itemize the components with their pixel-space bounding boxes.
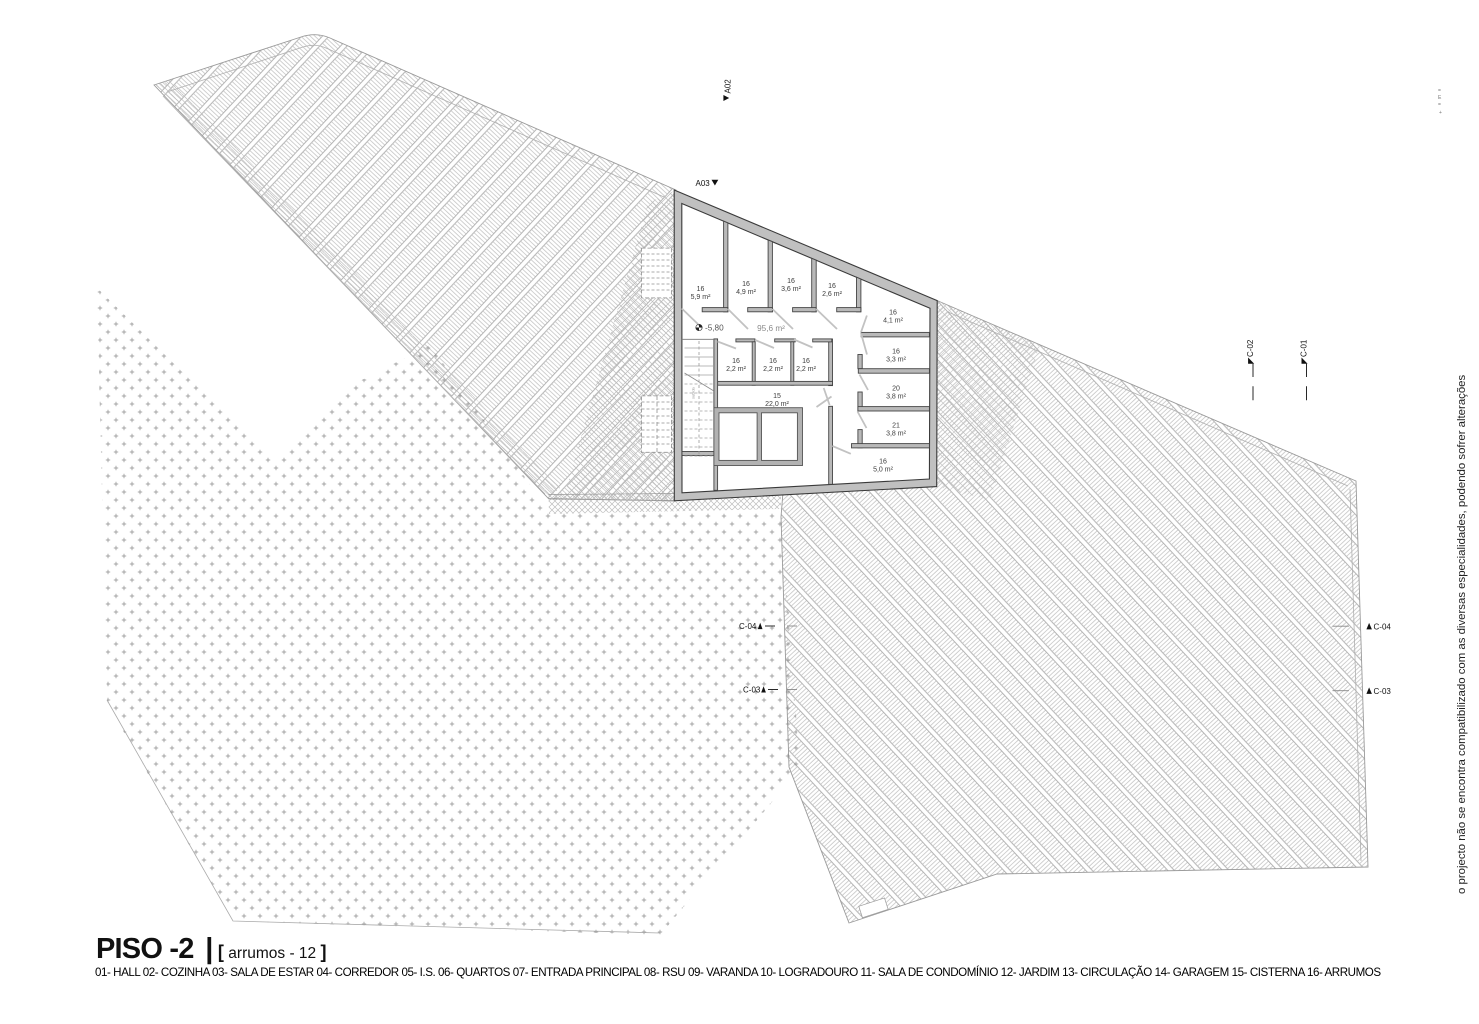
svg-text:15: 15	[773, 393, 781, 400]
svg-text:16: 16	[697, 286, 705, 293]
svg-text:+: +	[1439, 110, 1442, 116]
svg-text:16: 16	[879, 459, 887, 466]
svg-text:=: =	[1438, 102, 1441, 108]
svg-text:5,0 m²: 5,0 m²	[873, 467, 894, 474]
svg-text:A03: A03	[696, 179, 711, 188]
svg-text:16: 16	[892, 349, 900, 356]
svg-text:21: 21	[892, 423, 900, 430]
svg-text:C-03: C-03	[743, 686, 761, 695]
svg-text:subida: subida	[691, 386, 696, 399]
svg-text:3,8 m²: 3,8 m²	[886, 431, 907, 438]
svg-text:5,9 m²: 5,9 m²	[691, 294, 712, 301]
svg-text:C-03: C-03	[1374, 687, 1392, 696]
svg-text:20: 20	[892, 386, 900, 393]
svg-text:A02: A02	[724, 79, 733, 94]
svg-text:95,6 m²: 95,6 m²	[757, 324, 785, 333]
svg-text:16: 16	[742, 281, 750, 288]
svg-text:16: 16	[732, 358, 740, 365]
svg-text:2,2 m²: 2,2 m²	[796, 366, 817, 373]
svg-text:-5,80: -5,80	[705, 324, 724, 333]
svg-text:C-02: C-02	[1246, 339, 1255, 357]
svg-text:16: 16	[769, 358, 777, 365]
svg-text:E: E	[1438, 95, 1442, 101]
svg-text:2,6 m²: 2,6 m²	[822, 291, 843, 298]
svg-text:3,3 m²: 3,3 m²	[886, 357, 907, 364]
svg-text:=: =	[1438, 88, 1441, 94]
svg-text:16: 16	[828, 283, 836, 290]
svg-text:C-04: C-04	[1374, 622, 1392, 631]
svg-text:4,9 m²: 4,9 m²	[736, 289, 757, 296]
svg-text:C-04: C-04	[739, 622, 757, 631]
svg-text:4,1 m²: 4,1 m²	[883, 318, 904, 325]
svg-text:C-01: C-01	[1300, 339, 1309, 357]
svg-text:16: 16	[802, 358, 810, 365]
svg-text:3,6 m²: 3,6 m²	[781, 286, 802, 293]
svg-text:2,2 m²: 2,2 m²	[726, 366, 747, 373]
svg-text:22,0 m²: 22,0 m²	[765, 401, 789, 408]
svg-text:2,2 m²: 2,2 m²	[763, 366, 784, 373]
svg-text:3,8 m²: 3,8 m²	[886, 394, 907, 401]
svg-text:16: 16	[889, 310, 897, 317]
svg-text:16: 16	[787, 278, 795, 285]
